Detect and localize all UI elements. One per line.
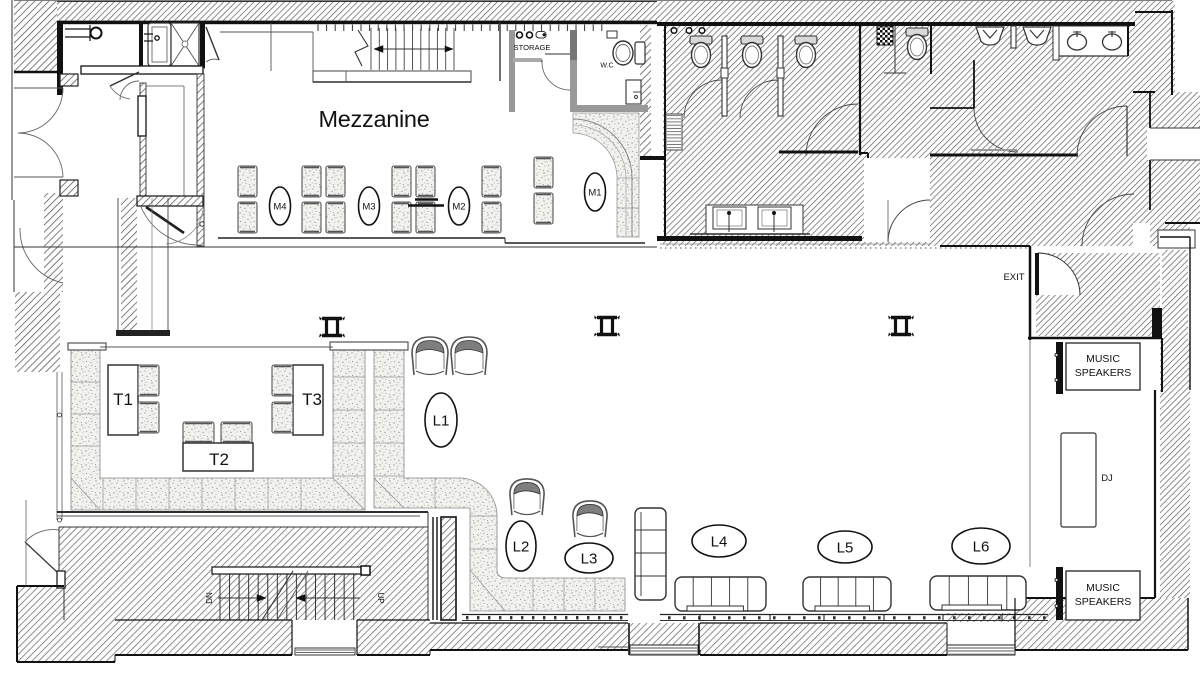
svg-text:DN: DN — [205, 592, 214, 604]
svg-text:T1: T1 — [113, 390, 133, 409]
svg-text:DJ: DJ — [1101, 473, 1113, 484]
svg-text:STORAGE: STORAGE — [514, 43, 551, 52]
svg-text:L4: L4 — [711, 533, 728, 550]
svg-text:L3: L3 — [581, 550, 598, 567]
svg-text:SPEAKERS: SPEAKERS — [1075, 367, 1132, 379]
svg-text:UP: UP — [376, 592, 385, 603]
svg-text:M3: M3 — [362, 201, 375, 212]
svg-text:EXIT: EXIT — [1003, 272, 1024, 283]
svg-text:L5: L5 — [837, 539, 854, 556]
svg-text:T2: T2 — [209, 450, 229, 469]
svg-text:MUSIC: MUSIC — [1086, 353, 1120, 365]
svg-text:T3: T3 — [302, 390, 322, 409]
svg-text:W.C: W.C — [600, 63, 613, 70]
svg-text:L2: L2 — [513, 538, 530, 555]
svg-text:M4: M4 — [273, 201, 286, 212]
svg-text:Mezzanine: Mezzanine — [319, 106, 430, 132]
svg-text:SPEAKERS: SPEAKERS — [1075, 596, 1132, 608]
svg-text:M1: M1 — [588, 187, 601, 198]
svg-text:L1: L1 — [433, 412, 450, 429]
svg-text:M2: M2 — [452, 201, 465, 212]
svg-text:L6: L6 — [973, 538, 990, 555]
svg-text:MUSIC: MUSIC — [1086, 582, 1120, 594]
